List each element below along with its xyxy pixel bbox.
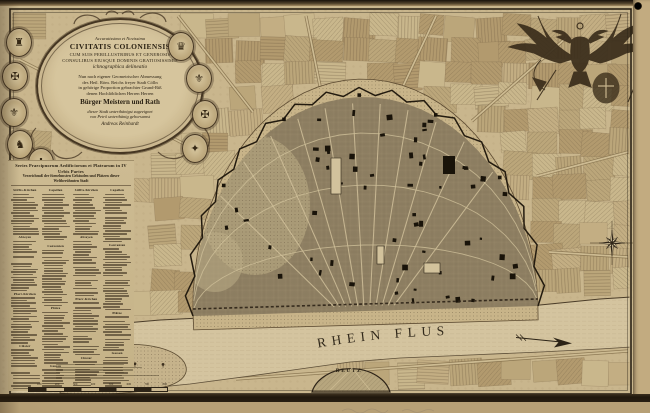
scale-bar-rule — [28, 387, 168, 392]
scale-tick-label: 400 — [91, 382, 96, 386]
scale-bar: 100200300400500600700800 — [28, 382, 168, 392]
title-cartouche: Accuratissima et Novissima CIVITATIS COL… — [22, 10, 218, 162]
crest-glyph-icon: ✠ — [200, 108, 209, 121]
crest-glyph-icon: ♛ — [176, 40, 186, 53]
cartouche-line: Bürger Meistern und Rath — [56, 98, 184, 107]
scale-tick-label: 200 — [55, 382, 60, 386]
village-label: DEUTZ — [336, 368, 363, 374]
heraldic-medallion: ⚜ — [186, 64, 212, 93]
cartouche-line: von Petrô unterthänig gehorsamst — [56, 114, 184, 120]
legend-panel: Series Praecipuorum Aedificiorum et Plat… — [8, 160, 134, 391]
scale-tick-label: 600 — [127, 382, 132, 386]
scale-tick-label: 300 — [73, 382, 78, 386]
heraldic-medallion: ✦ — [182, 134, 208, 163]
map-sheet: RHEIN FLUS DEUTZ — [0, 0, 650, 413]
crest-glyph-icon: ⚜ — [194, 72, 204, 85]
crest-glyph-icon: ✦ — [190, 142, 199, 155]
heraldic-medallion: ✠ — [2, 62, 28, 91]
crest-glyph-icon: ✠ — [10, 70, 19, 83]
heraldic-medallion: ⚜ — [1, 98, 27, 127]
cartouche-line: denen Hochlöblichen Herren Herren — [56, 91, 184, 97]
heraldic-medallion: ♛ — [168, 32, 194, 61]
sheet-bottom-margin — [0, 402, 650, 413]
heraldic-medallion: ♜ — [6, 28, 32, 57]
sheet-top-edge — [0, 0, 650, 6]
cartouche-line: cum suis perillustribus et generosis — [56, 52, 184, 58]
notes-block — [56, 364, 162, 380]
heraldic-medallion: ✠ — [192, 100, 218, 129]
sheet-bottom-shadow-band — [0, 394, 650, 402]
cartouche-line: ichnographica delineatio — [56, 64, 184, 71]
scale-tick-label: 700 — [145, 382, 150, 386]
scale-tick-label: 800 — [162, 382, 167, 386]
cartouche-title: Accuratissima et Novissima CIVITATIS COL… — [56, 36, 184, 128]
punch-hole-dot — [634, 2, 642, 10]
cartouche-line: Andreas Reinhardt — [56, 122, 184, 129]
crest-glyph-icon: ♞ — [15, 138, 25, 151]
cartouche-line: Consulibus eiusque Dominis gratiosissimi… — [56, 58, 184, 64]
legend-divider — [11, 185, 131, 186]
pencil-squiggle — [340, 405, 450, 413]
scale-tick-label: 500 — [109, 382, 114, 386]
sheet-right-margin — [633, 0, 650, 413]
crest-glyph-icon: ♜ — [14, 36, 24, 49]
legend-header-german: Verzeichnuß der fürnehmsten Gebäuden und… — [11, 174, 131, 183]
cartouche-line: CIVITATIS COLONIENSIS — [56, 42, 184, 52]
scale-tick-label: 100 — [37, 382, 42, 386]
pencil-annotation — [340, 402, 450, 412]
legend-column: Stiffts-KirchenAbteyenPfarr-KirchenClöst… — [11, 188, 39, 396]
legend-header-latin: Series Praecipuorum Aedificiorum et Plat… — [11, 163, 131, 174]
crest-glyph-icon: ⚜ — [9, 106, 19, 119]
